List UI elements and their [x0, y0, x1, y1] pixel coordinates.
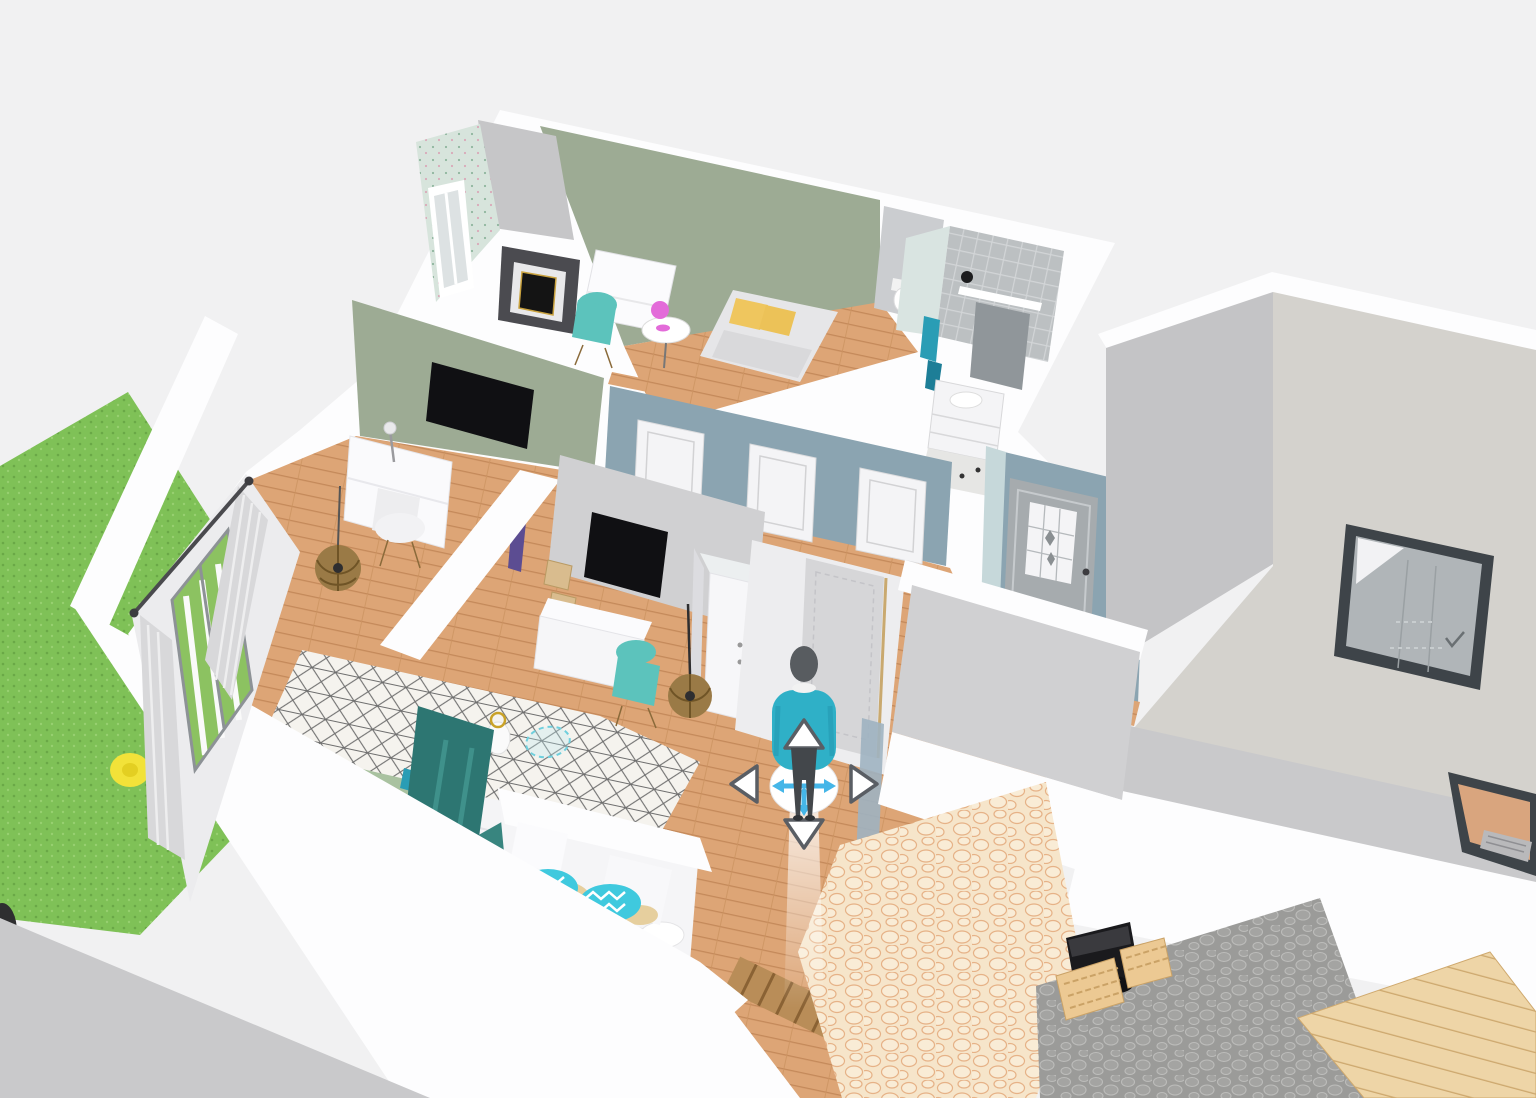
- floorplan-3d-viewport[interactable]: [0, 0, 1536, 1098]
- mirror: [970, 302, 1030, 390]
- fireplace: [498, 246, 580, 334]
- wall-frame: [544, 560, 572, 590]
- scene-canvas: [0, 0, 1536, 1098]
- ceiling-light: [961, 271, 973, 283]
- door: [856, 468, 926, 564]
- parasol: [110, 753, 150, 787]
